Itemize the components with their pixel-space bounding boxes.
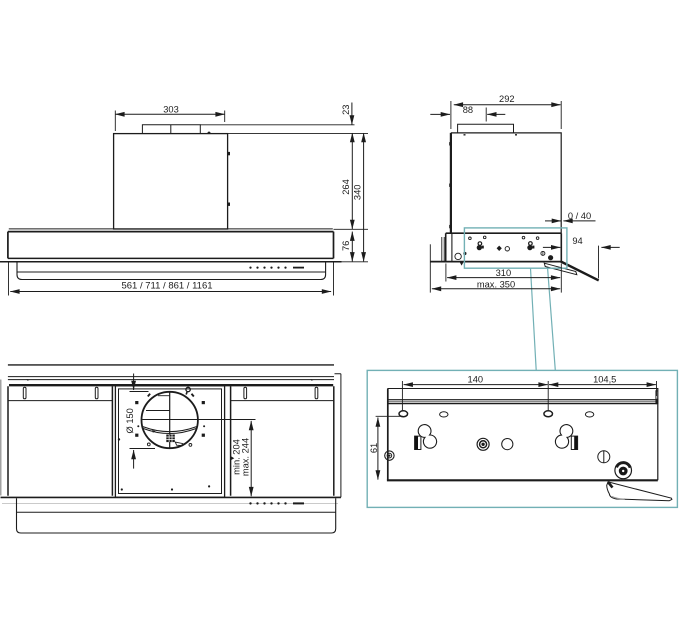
svg-text:264: 264 [341, 179, 351, 195]
svg-text:140: 140 [468, 374, 484, 384]
svg-text:340: 340 [353, 185, 363, 201]
svg-text:303: 303 [163, 104, 179, 114]
svg-text:104,5: 104,5 [593, 374, 616, 384]
svg-text:Ø 150: Ø 150 [125, 408, 135, 433]
svg-text:310: 310 [496, 268, 512, 278]
svg-text:0 / 40: 0 / 40 [568, 211, 591, 221]
svg-text:max. 244: max. 244 [240, 438, 250, 476]
svg-text:max. 350: max. 350 [477, 280, 515, 290]
svg-text:61: 61 [369, 443, 379, 453]
svg-text:23: 23 [341, 105, 351, 115]
svg-text:94: 94 [572, 236, 582, 246]
svg-text:292: 292 [499, 94, 515, 104]
svg-text:76: 76 [341, 241, 351, 251]
svg-text:561 / 711 / 861 / 1161: 561 / 711 / 861 / 1161 [121, 280, 212, 291]
svg-text:88: 88 [463, 105, 473, 115]
